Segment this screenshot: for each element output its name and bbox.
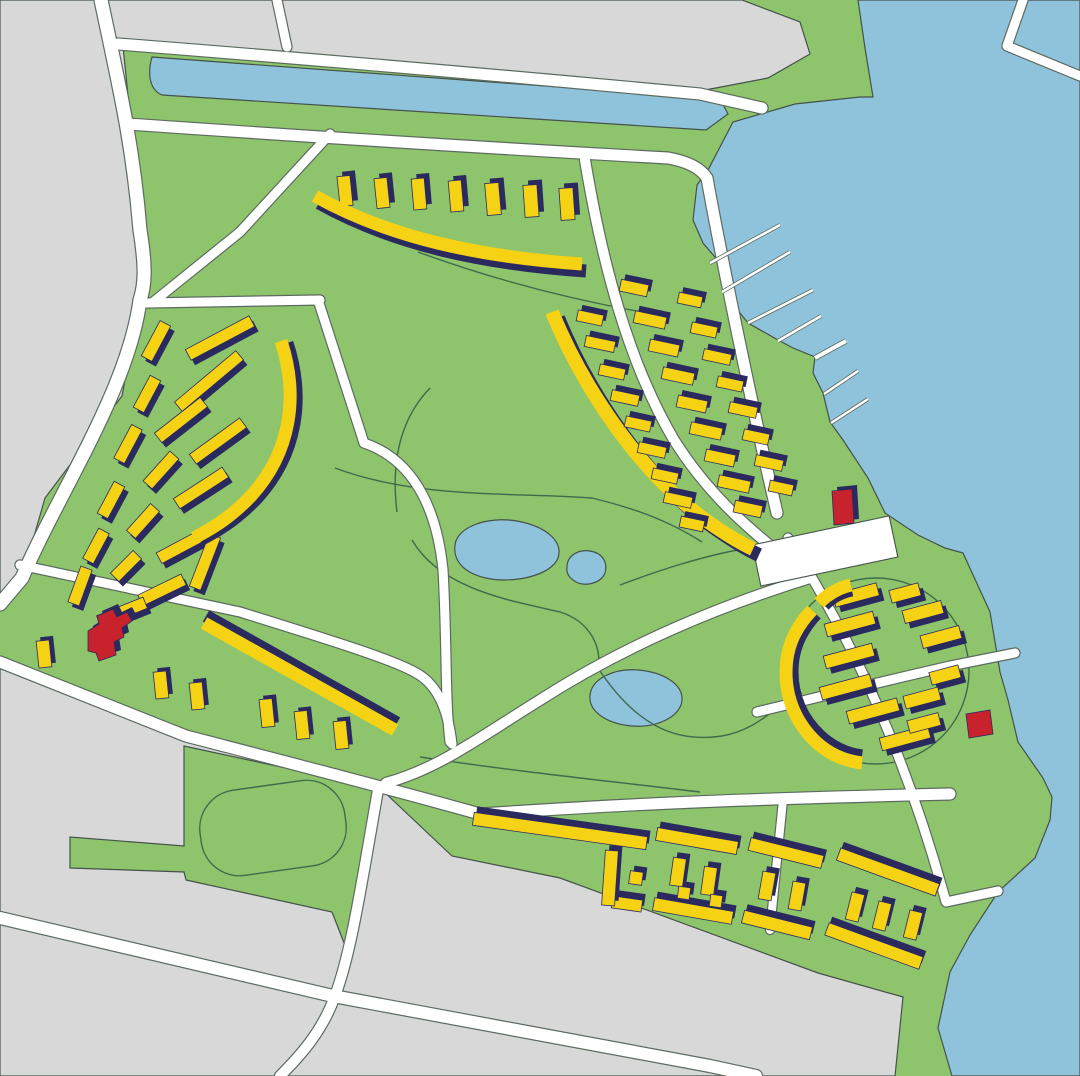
masterplan-map — [0, 0, 1080, 1076]
pond — [567, 551, 606, 584]
building — [559, 188, 575, 221]
building — [709, 894, 723, 908]
building — [485, 182, 502, 215]
building — [448, 180, 464, 212]
landmark-building — [832, 489, 854, 525]
building — [411, 178, 427, 210]
pond — [590, 670, 682, 726]
building — [629, 871, 644, 886]
road — [146, 300, 320, 303]
building — [189, 682, 205, 710]
building — [153, 671, 169, 699]
building — [36, 640, 52, 668]
shore-landmark — [966, 710, 993, 738]
map-canvas — [0, 0, 1080, 1076]
building — [677, 886, 691, 900]
building — [523, 185, 539, 218]
landmark-building — [966, 710, 993, 738]
building — [294, 710, 310, 739]
building — [333, 720, 349, 749]
building — [259, 698, 275, 727]
harbor-landmark — [832, 485, 859, 525]
building — [374, 177, 390, 208]
